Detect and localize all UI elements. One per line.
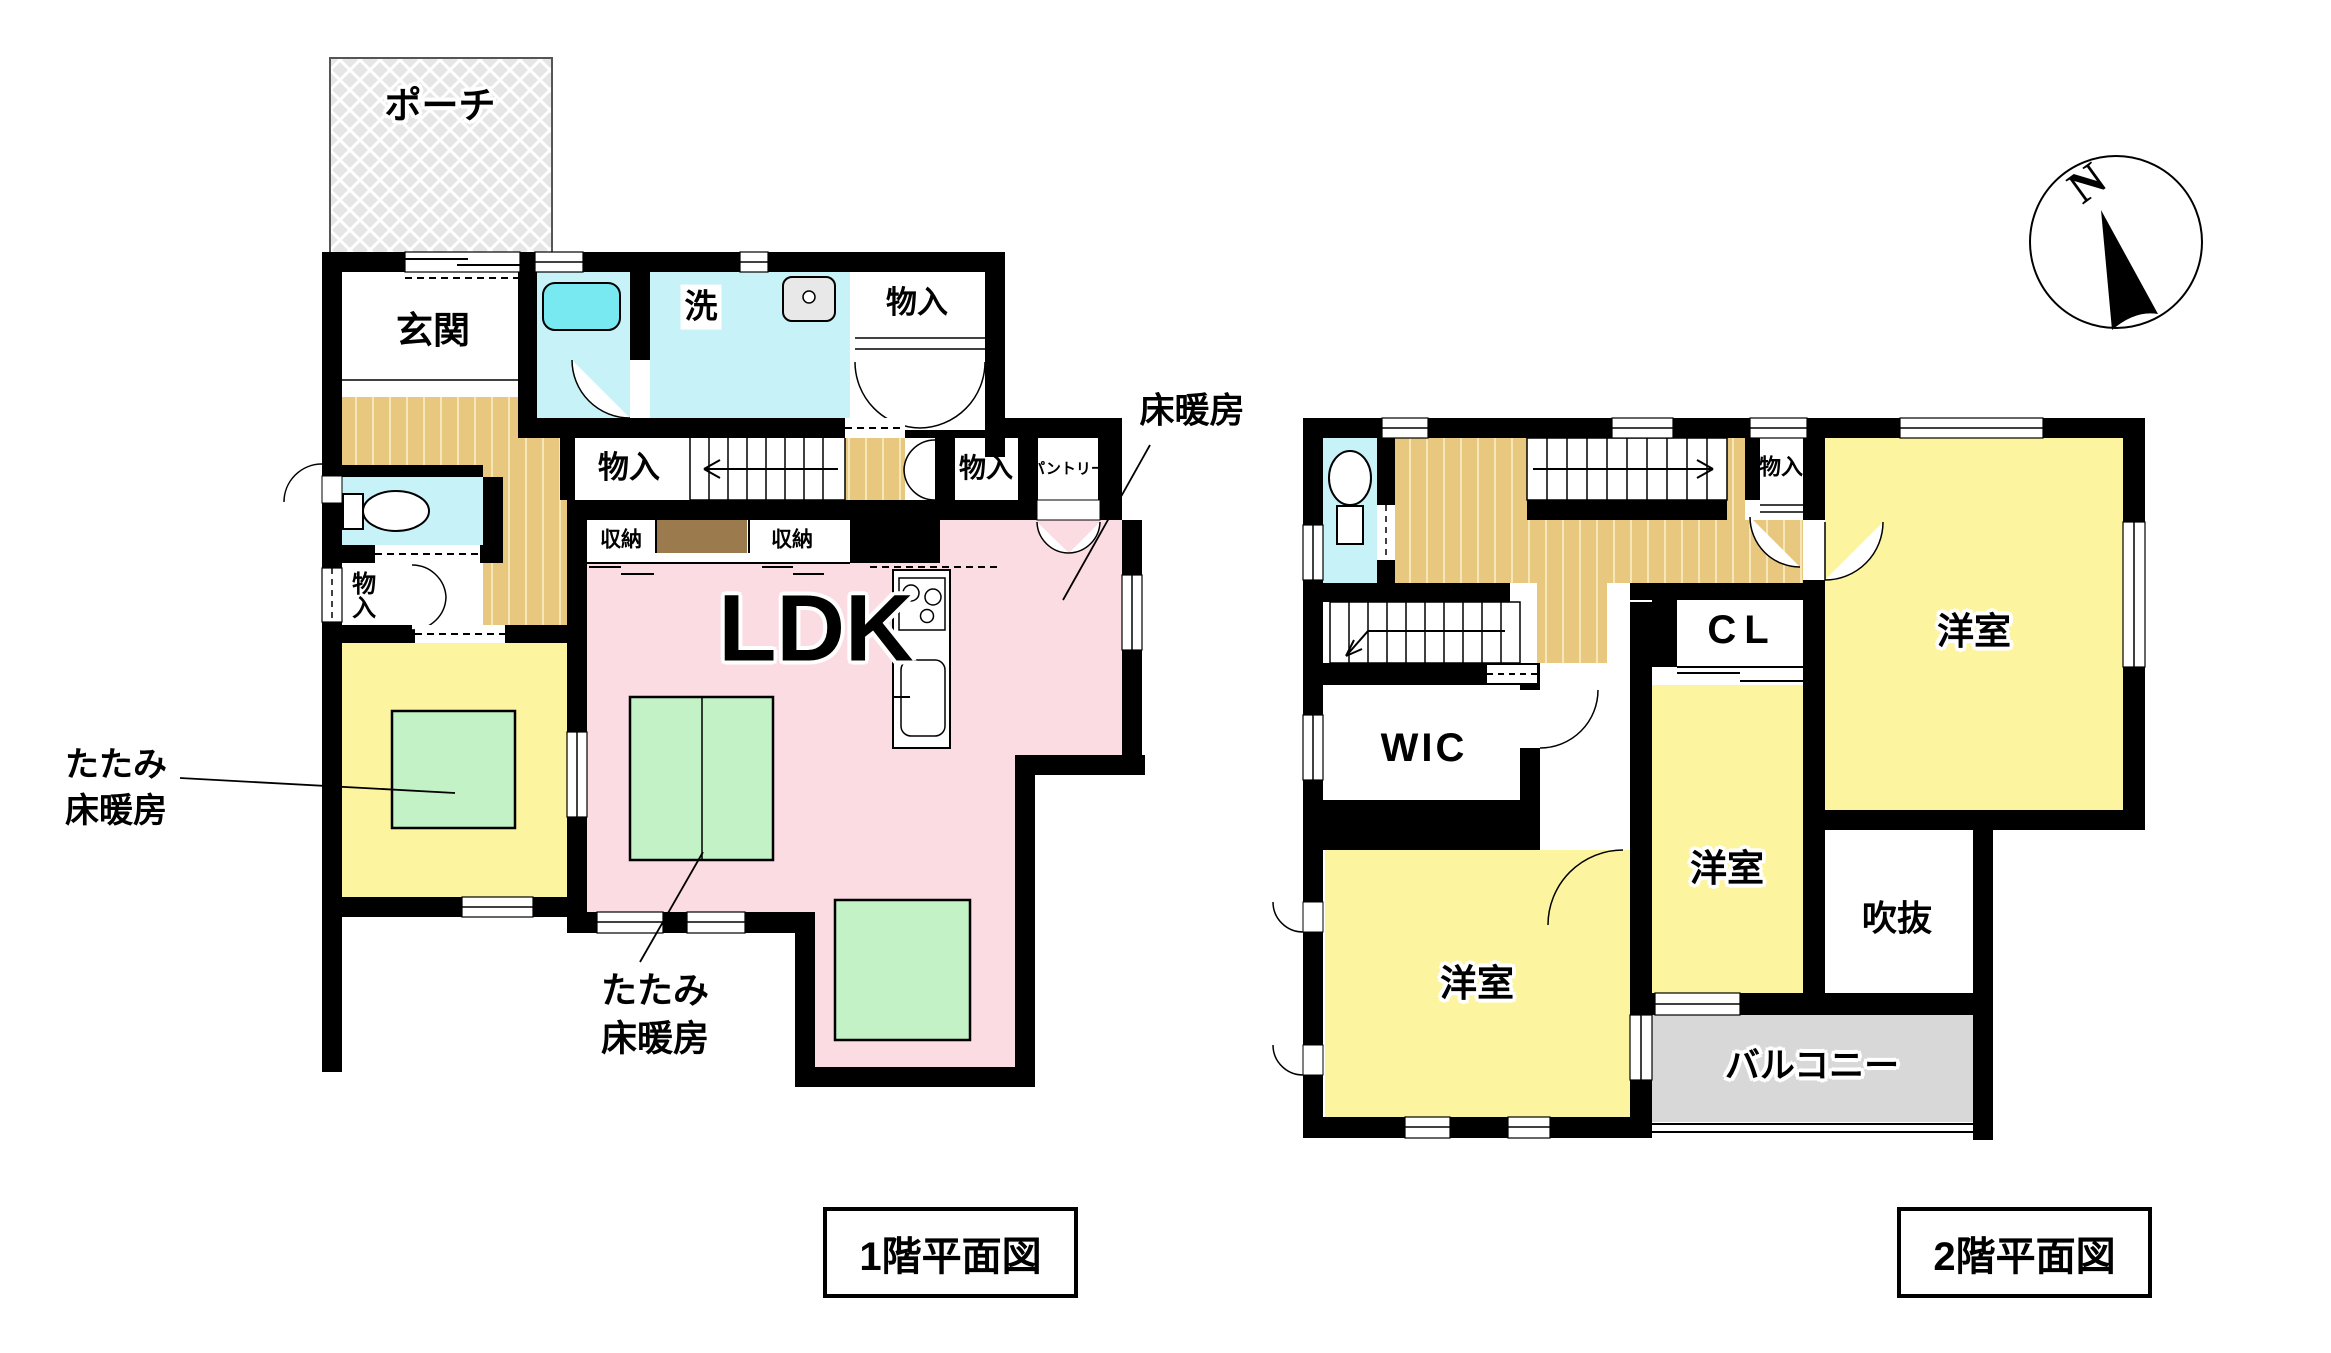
tatami-mat-left (392, 711, 515, 828)
toilet-1f (343, 491, 429, 531)
label-void: 吹抜 (1862, 896, 1932, 942)
cabinet-brown (657, 520, 747, 553)
label-floor-heating: 床暖房 (1139, 388, 1244, 434)
label-pantry: パントリー (1030, 459, 1106, 479)
bathtub (543, 283, 620, 330)
label-cl: CL (1707, 604, 1776, 656)
label-storage-side: 物入 (345, 571, 376, 619)
label-storage-hall: 物入 (598, 448, 660, 488)
floor-plan-page: ポーチ 玄関 洗 物入 物入 物入 物入 パントリー 収納 収納 LDK 床暖房… (0, 0, 2331, 1353)
label-tatami-right-2: 床暖房 (601, 1016, 709, 1063)
label-tatami-left-1: たたみ (65, 743, 167, 787)
floor2-plan (1273, 418, 2145, 1140)
label-porch: ポーチ (385, 82, 496, 130)
label-tatami-right-1: たたみ (601, 968, 709, 1015)
floor-plan-drawing (0, 0, 2331, 1353)
label-wic: WIC (1381, 722, 1468, 774)
label-storage-2f: 物入 (1759, 454, 1803, 483)
label-bedroom-left: 洋室 (1440, 960, 1514, 1008)
floor2-title: 2階平面図 (1897, 1207, 2152, 1298)
compass (2030, 156, 2202, 330)
room-bedroom-center (1652, 685, 1803, 993)
compass-needle (2101, 210, 2158, 330)
label-storage-kitchen: 物入 (959, 451, 1013, 486)
label-balcony: バルコニー (1725, 1043, 1899, 1089)
label-entrance: 玄関 (396, 307, 470, 355)
tatami-mat-extension (835, 900, 970, 1040)
label-bedroom-top: 洋室 (1937, 608, 2011, 656)
label-closet-a: 収納 (600, 526, 642, 553)
label-laundry: 洗 (681, 285, 722, 330)
vanity-sink (783, 277, 835, 321)
floor1-plan (180, 58, 1150, 1087)
label-closet-b: 収納 (771, 526, 813, 553)
label-ldk: LDK (718, 567, 913, 691)
label-storage-top: 物入 (886, 283, 948, 323)
stairs-1f (690, 437, 845, 500)
label-bedroom-center: 洋室 (1690, 845, 1764, 893)
floor1-title: 1階平面図 (823, 1207, 1078, 1298)
label-tatami-left-2: 床暖房 (65, 789, 167, 833)
